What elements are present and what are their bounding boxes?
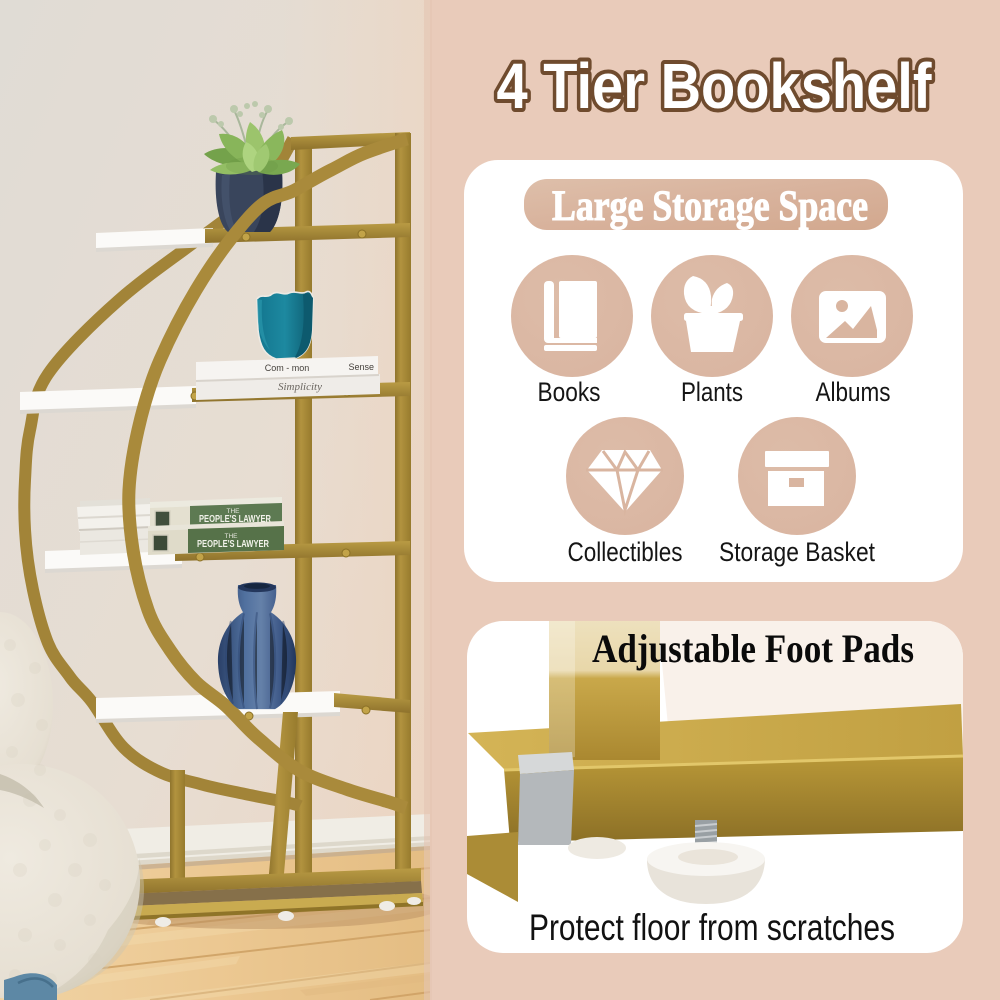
svg-text:Simplicity: Simplicity bbox=[278, 381, 322, 393]
svg-text:Com - mon: Com - mon bbox=[265, 363, 310, 373]
svg-text:Sense: Sense bbox=[348, 362, 374, 372]
svg-text:Protect floor from scratches: Protect floor from scratches bbox=[529, 907, 895, 948]
svg-text:Adjustable Foot Pads: Adjustable Foot Pads bbox=[592, 626, 914, 671]
svg-text:Plants: Plants bbox=[681, 377, 743, 407]
svg-text:Collectibles: Collectibles bbox=[568, 537, 683, 567]
svg-text:Books: Books bbox=[538, 377, 601, 407]
svg-text:PEOPLE'S LAWYER: PEOPLE'S LAWYER bbox=[197, 539, 270, 550]
svg-text:Storage Basket: Storage Basket bbox=[719, 537, 875, 567]
svg-text:Large Storage Space: Large Storage Space bbox=[552, 183, 868, 230]
svg-text:Albums: Albums bbox=[816, 377, 891, 407]
svg-text:4 Tier Bookshelf: 4 Tier Bookshelf bbox=[497, 50, 933, 122]
